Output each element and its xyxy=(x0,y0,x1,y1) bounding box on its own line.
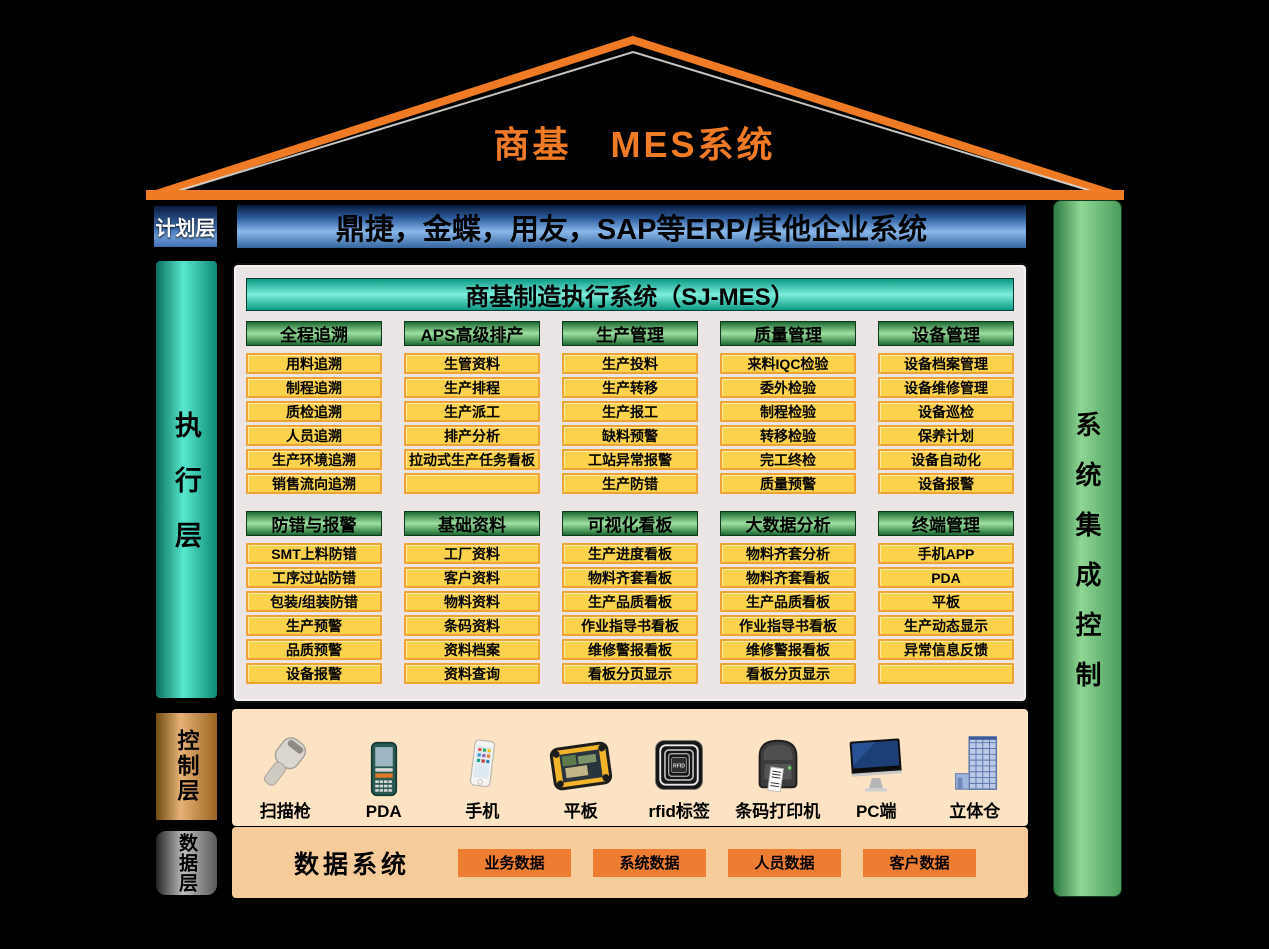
module-item: 物料齐套看板 xyxy=(720,567,856,588)
module-item: 品质预警 xyxy=(246,639,382,660)
module-item: 条码资料 xyxy=(404,615,540,636)
module-item: 生产品质看板 xyxy=(720,591,856,612)
mes-panel: 商基制造执行系统（SJ-MES） 全程追溯用料追溯制程追溯质检追溯人员追溯生产环… xyxy=(232,263,1028,703)
module-item: 平板 xyxy=(878,591,1014,612)
module-group: 生产管理生产投料生产转移生产报工缺料预警工站异常报警生产防错 xyxy=(562,321,698,494)
data-box-system: 系统数据 xyxy=(593,849,706,877)
module-group-title: 质量管理 xyxy=(720,321,856,346)
module-item-list: 生产进度看板物料齐套看板生产品质看板作业指导书看板维修警报看板看板分页显示 xyxy=(562,543,698,684)
module-item: 生产防错 xyxy=(562,473,698,494)
module-item: 客户资料 xyxy=(404,567,540,588)
tablet-icon xyxy=(545,730,617,796)
module-item-list: 工厂资料客户资料物料资料条码资料资料档案资料查询 xyxy=(404,543,540,684)
device-label: 平板 xyxy=(564,797,598,822)
module-group: APS高级排产生管资料生产排程生产派工排产分析拉动式生产任务看板 xyxy=(404,321,540,494)
pda-icon xyxy=(356,735,412,801)
module-item: 生产品质看板 xyxy=(562,591,698,612)
module-item-list: 来料IQC检验委外检验制程检验转移检验完工终检质量预警 xyxy=(720,353,856,494)
phone-icon xyxy=(457,730,507,796)
mes-system-header: 商基制造执行系统（SJ-MES） xyxy=(246,278,1014,311)
module-item: 作业指导书看板 xyxy=(720,615,856,636)
module-group-title: 防错与报警 xyxy=(246,511,382,536)
control-layer-label: 控制层 xyxy=(154,711,219,822)
module-item: 制程检验 xyxy=(720,401,856,422)
module-group-title: 设备管理 xyxy=(878,321,1014,346)
module-item-list: 手机APPPDA平板生产动态显示异常信息反馈 xyxy=(878,543,1014,684)
module-item: 来料IQC检验 xyxy=(720,353,856,374)
module-item: 工序过站防错 xyxy=(246,567,382,588)
module-item: 排产分析 xyxy=(404,425,540,446)
module-item: 物料齐套分析 xyxy=(720,543,856,564)
device-label: 扫描枪 xyxy=(260,797,311,822)
module-item: 看板分页显示 xyxy=(562,663,698,684)
data-system-panel: 数据系统 业务数据 系统数据 人员数据 客户数据 xyxy=(232,827,1028,898)
module-item: 生产预警 xyxy=(246,615,382,636)
module-item-list: 设备档案管理设备维修管理设备巡检保养计划设备自动化设备报警 xyxy=(878,353,1014,494)
module-item: 用料追溯 xyxy=(246,353,382,374)
module-item: 完工终检 xyxy=(720,449,856,470)
device-printer: 条码打印机 xyxy=(729,715,828,822)
rfid-tag-icon: RFID xyxy=(649,730,709,796)
module-item: 生产进度看板 xyxy=(562,543,698,564)
module-group: 可视化看板生产进度看板物料齐套看板生产品质看板作业指导书看板维修警报看板看板分页… xyxy=(562,511,698,684)
module-item: 人员追溯 xyxy=(246,425,382,446)
module-item: 看板分页显示 xyxy=(720,663,856,684)
module-item: 保养计划 xyxy=(878,425,1014,446)
plan-layer-label: 计划层 xyxy=(152,204,219,249)
device-scanner: 扫描枪 xyxy=(236,715,335,822)
barcode-scanner-icon xyxy=(254,730,316,796)
device-label: PDA xyxy=(366,802,402,822)
control-devices-panel: 扫描枪 PDA xyxy=(232,709,1028,826)
module-group: 基础资料工厂资料客户资料物料资料条码资料资料档案资料查询 xyxy=(404,511,540,684)
module-item-list: 用料追溯制程追溯质检追溯人员追溯生产环境追溯销售流向追溯 xyxy=(246,353,382,494)
svg-text:RFID: RFID xyxy=(673,763,685,769)
module-item: 质量预警 xyxy=(720,473,856,494)
device-label: 手机 xyxy=(465,797,499,822)
module-item-empty xyxy=(404,473,540,494)
data-layer-label: 数据层 xyxy=(154,829,219,897)
module-item: 缺料预警 xyxy=(562,425,698,446)
module-item: 资料查询 xyxy=(404,663,540,684)
module-item-empty xyxy=(878,663,1014,684)
data-box-business: 业务数据 xyxy=(458,849,571,877)
module-item: 生产报工 xyxy=(562,401,698,422)
module-item: SMT上料防错 xyxy=(246,543,382,564)
device-label: 条码打印机 xyxy=(735,797,820,822)
device-tablet: 平板 xyxy=(532,715,631,822)
module-item: 生产环境追溯 xyxy=(246,449,382,470)
module-item: 生产动态显示 xyxy=(878,615,1014,636)
execution-layer-label: 执行层 xyxy=(154,259,219,700)
barcode-printer-icon xyxy=(747,730,809,796)
pc-monitor-icon xyxy=(843,730,909,796)
module-item: 生产排程 xyxy=(404,377,540,398)
module-row-1: 全程追溯用料追溯制程追溯质检追溯人员追溯生产环境追溯销售流向追溯APS高级排产生… xyxy=(246,321,1014,494)
device-label: 立体仓 xyxy=(949,797,1000,822)
module-item: 异常信息反馈 xyxy=(878,639,1014,660)
module-item: 维修警报看板 xyxy=(562,639,698,660)
module-item: 设备报警 xyxy=(878,473,1014,494)
device-rfid: RFID rfid标签 xyxy=(630,715,729,822)
module-group: 设备管理设备档案管理设备维修管理设备巡检保养计划设备自动化设备报警 xyxy=(878,321,1014,494)
module-group-title: APS高级排产 xyxy=(404,321,540,346)
data-box-personnel: 人员数据 xyxy=(728,849,841,877)
module-group: 质量管理来料IQC检验委外检验制程检验转移检验完工终检质量预警 xyxy=(720,321,856,494)
module-item-list: 生产投料生产转移生产报工缺料预警工站异常报警生产防错 xyxy=(562,353,698,494)
module-group-title: 生产管理 xyxy=(562,321,698,346)
module-group-title: 可视化看板 xyxy=(562,511,698,536)
module-item: 转移检验 xyxy=(720,425,856,446)
module-item: 资料档案 xyxy=(404,639,540,660)
module-item: 质检追溯 xyxy=(246,401,382,422)
device-pc: PC端 xyxy=(827,715,926,822)
mes-architecture-diagram: 商基 MES系统 计划层 执行层 控制层 数据层 系统集成控制 鼎捷，金蝶，用友… xyxy=(0,0,1269,949)
module-item: 制程追溯 xyxy=(246,377,382,398)
module-item: 工厂资料 xyxy=(404,543,540,564)
module-item: PDA xyxy=(878,567,1014,588)
device-label: rfid标签 xyxy=(649,797,710,822)
diagram-title: 商基 MES系统 xyxy=(0,116,1269,168)
module-item-list: 物料齐套分析物料齐套看板生产品质看板作业指导书看板维修警报看板看板分页显示 xyxy=(720,543,856,684)
warehouse-icon xyxy=(944,730,1006,796)
data-boxes: 业务数据 系统数据 人员数据 客户数据 xyxy=(458,849,976,877)
module-item: 生产投料 xyxy=(562,353,698,374)
module-item-list: 生管资料生产排程生产派工排产分析拉动式生产任务看板 xyxy=(404,353,540,494)
module-row-2: 防错与报警SMT上料防错工序过站防错包装/组装防错生产预警品质预警设备报警基础资… xyxy=(246,511,1014,684)
roof-outline xyxy=(0,0,1269,215)
module-item: 生产派工 xyxy=(404,401,540,422)
module-item: 手机APP xyxy=(878,543,1014,564)
module-item: 物料齐套看板 xyxy=(562,567,698,588)
module-item: 维修警报看板 xyxy=(720,639,856,660)
device-phone: 手机 xyxy=(433,715,532,822)
module-group: 全程追溯用料追溯制程追溯质检追溯人员追溯生产环境追溯销售流向追溯 xyxy=(246,321,382,494)
module-item: 作业指导书看板 xyxy=(562,615,698,636)
device-warehouse: 立体仓 xyxy=(926,715,1025,822)
module-group-title: 全程追溯 xyxy=(246,321,382,346)
module-group: 终端管理手机APPPDA平板生产动态显示异常信息反馈 xyxy=(878,511,1014,684)
data-system-title: 数据系统 xyxy=(294,845,458,881)
module-item-list: SMT上料防错工序过站防错包装/组装防错生产预警品质预警设备报警 xyxy=(246,543,382,684)
module-item: 设备档案管理 xyxy=(878,353,1014,374)
module-item: 物料资料 xyxy=(404,591,540,612)
module-item: 拉动式生产任务看板 xyxy=(404,449,540,470)
system-integration-bar: 系统集成控制 xyxy=(1053,200,1122,897)
module-group-title: 大数据分析 xyxy=(720,511,856,536)
module-group: 防错与报警SMT上料防错工序过站防错包装/组装防错生产预警品质预警设备报警 xyxy=(246,511,382,684)
module-group: 大数据分析物料齐套分析物料齐套看板生产品质看板作业指导书看板维修警报看板看板分页… xyxy=(720,511,856,684)
module-group-title: 终端管理 xyxy=(878,511,1014,536)
module-item: 设备巡检 xyxy=(878,401,1014,422)
module-item: 生管资料 xyxy=(404,353,540,374)
module-item: 设备自动化 xyxy=(878,449,1014,470)
module-item: 工站异常报警 xyxy=(562,449,698,470)
module-item: 生产转移 xyxy=(562,377,698,398)
module-group-title: 基础资料 xyxy=(404,511,540,536)
module-item: 包装/组装防错 xyxy=(246,591,382,612)
module-item: 销售流向追溯 xyxy=(246,473,382,494)
module-item: 委外检验 xyxy=(720,377,856,398)
module-item: 设备报警 xyxy=(246,663,382,684)
data-box-customer: 客户数据 xyxy=(863,849,976,877)
device-label: PC端 xyxy=(856,797,897,822)
device-pda: PDA xyxy=(335,715,434,822)
erp-systems-bar: 鼎捷，金蝶，用友，SAP等ERP/其他企业系统 xyxy=(235,203,1028,250)
module-item: 设备维修管理 xyxy=(878,377,1014,398)
